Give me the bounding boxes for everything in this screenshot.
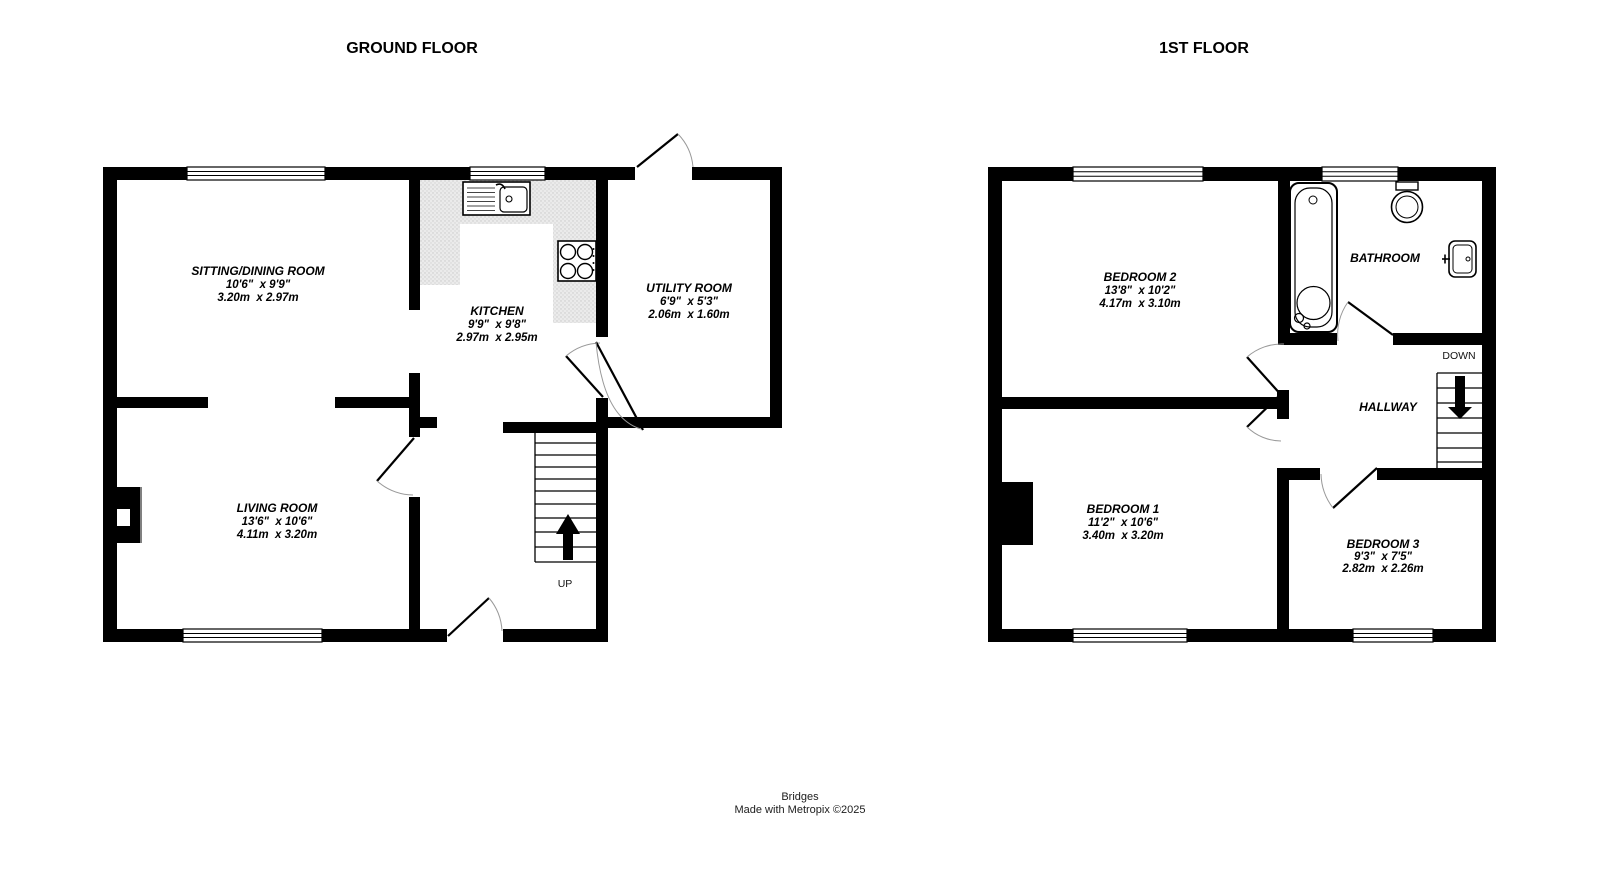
ground-floor-plan: SITTING/DINING ROOM 10'6" x 9'9" 3.20m x…: [103, 134, 782, 642]
svg-text:2.97m x 2.95m: 2.97m x 2.95m: [455, 332, 537, 344]
bedroom3-door: [1321, 468, 1377, 508]
bedroom1-label: BEDROOM 1 11'2" x 10'6" 3.40m x 3.20m: [1082, 502, 1163, 542]
hob-icon: [558, 241, 596, 281]
back-door: [637, 134, 693, 167]
svg-text:9'9" x 9'8": 9'9" x 9'8": [468, 319, 526, 331]
sitting-dining-room-label: SITTING/DINING ROOM 10'6" x 9'9" 3.20m x…: [191, 264, 325, 304]
svg-text:BEDROOM 2: BEDROOM 2: [1104, 270, 1177, 284]
svg-text:3.20m x 2.97m: 3.20m x 2.97m: [217, 292, 298, 304]
sitting-room-window: [187, 167, 325, 180]
bedroom3-label: BEDROOM 3 9'3" x 7'5" 2.82m x 2.26m: [1341, 537, 1423, 575]
bedroom2-label: BEDROOM 2 13'8" x 10'2" 4.17m x 3.10m: [1098, 270, 1180, 310]
stairs-up: [535, 433, 596, 562]
kitchen-label: KITCHEN 9'9" x 9'8" 2.97m x 2.95m: [455, 304, 537, 344]
bathroom-door: [1338, 302, 1393, 341]
footer-credit: Bridges Made with Metropix ©2025: [734, 791, 865, 816]
svg-text:11'2" x 10'6": 11'2" x 10'6": [1088, 517, 1158, 529]
chimney-breast: [1002, 482, 1033, 545]
first-floor-title: 1ST FLOOR: [1159, 40, 1249, 57]
bathroom-window: [1322, 167, 1398, 181]
svg-text:13'8" x 10'2": 13'8" x 10'2": [1105, 285, 1176, 297]
floorplan-drawing: GROUND FLOOR 1ST FLOOR: [0, 0, 1600, 875]
bedroom2-door: [1247, 344, 1284, 397]
kitchen-window: [470, 167, 545, 180]
svg-text:LIVING ROOM: LIVING ROOM: [237, 501, 319, 515]
stairs-down: [1437, 373, 1482, 468]
back-door-opening: [635, 167, 692, 180]
first-floor-plan: BEDROOM 2 13'8" x 10'2" 4.17m x 3.10m BA…: [988, 167, 1496, 642]
svg-text:4.17m x 3.10m: 4.17m x 3.10m: [1098, 298, 1180, 310]
down-arrow-icon: [1448, 376, 1472, 419]
svg-text:2.06m x 1.60m: 2.06m x 1.60m: [647, 309, 729, 321]
footer-line2: Made with Metropix ©2025: [734, 804, 865, 816]
bathroom-label: BATHROOM: [1350, 251, 1421, 265]
bedroom1-window: [1073, 629, 1187, 642]
bedroom2-window: [1073, 167, 1203, 181]
svg-text:BEDROOM 1: BEDROOM 1: [1087, 502, 1160, 516]
svg-text:BEDROOM 3: BEDROOM 3: [1347, 537, 1420, 551]
living-room-label: LIVING ROOM 13'6" x 10'6" 4.11m x 3.20m: [236, 501, 319, 541]
svg-text:13'6" x 10'6": 13'6" x 10'6": [242, 516, 313, 528]
up-arrow-icon: [556, 514, 580, 560]
svg-text:6'9" x 5'3": 6'9" x 5'3": [660, 296, 718, 308]
svg-text:10'6" x 9'9": 10'6" x 9'9": [226, 279, 291, 291]
living-room-window: [183, 629, 322, 642]
svg-text:4.11m x 3.20m: 4.11m x 3.20m: [236, 529, 317, 541]
bedroom3-window: [1353, 629, 1433, 642]
bathtub-icon: [1290, 183, 1337, 332]
up-label: UP: [558, 578, 573, 590]
hallway-label: HALLWAY: [1359, 400, 1418, 414]
floorplan-page: GROUND FLOOR 1ST FLOOR: [0, 0, 1600, 875]
svg-text:2.82m x 2.26m: 2.82m x 2.26m: [1341, 563, 1423, 575]
svg-text:KITCHEN: KITCHEN: [470, 304, 524, 318]
footer-line1: Bridges: [781, 791, 819, 803]
svg-text:SITTING/DINING ROOM: SITTING/DINING ROOM: [191, 264, 325, 278]
kitchen-sink: [463, 182, 530, 215]
front-door-opening: [447, 629, 503, 642]
svg-text:9'3" x 7'5": 9'3" x 7'5": [1354, 551, 1412, 563]
down-label: DOWN: [1442, 350, 1475, 362]
basin-icon: [1442, 241, 1476, 277]
fireplace: [117, 487, 141, 543]
utility-room-label: UTILITY ROOM 6'9" x 5'3" 2.06m x 1.60m: [646, 281, 733, 321]
ground-floor-title: GROUND FLOOR: [346, 40, 478, 57]
svg-text:UTILITY ROOM: UTILITY ROOM: [646, 281, 733, 295]
toilet-icon: [1392, 182, 1423, 223]
svg-text:3.40m x 3.20m: 3.40m x 3.20m: [1082, 530, 1163, 542]
living-room-door: [377, 438, 414, 495]
